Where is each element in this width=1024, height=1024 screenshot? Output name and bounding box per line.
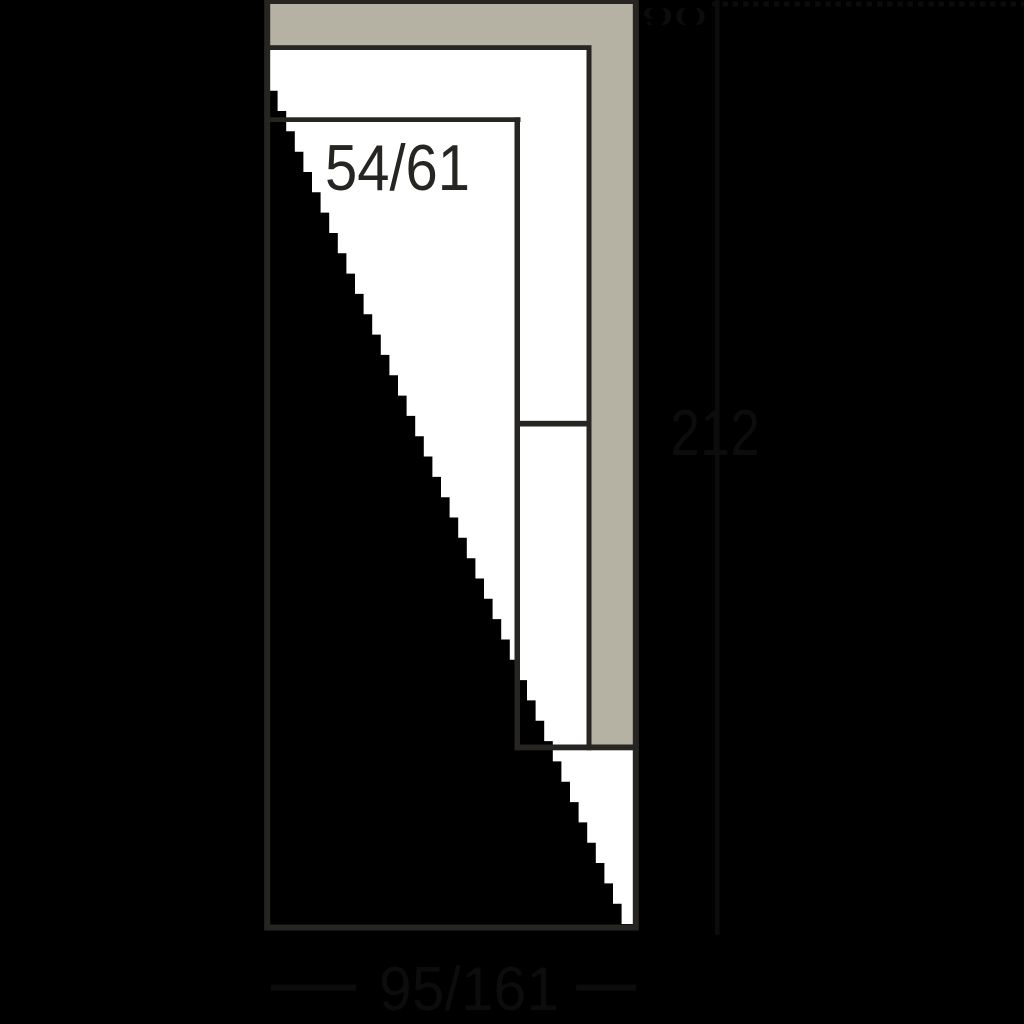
svg-text:54/61: 54/61 — [325, 131, 470, 204]
svg-text:212: 212 — [670, 396, 760, 469]
svg-text:90: 90 — [641, 1, 707, 32]
svg-text:95/161: 95/161 — [379, 955, 559, 1024]
